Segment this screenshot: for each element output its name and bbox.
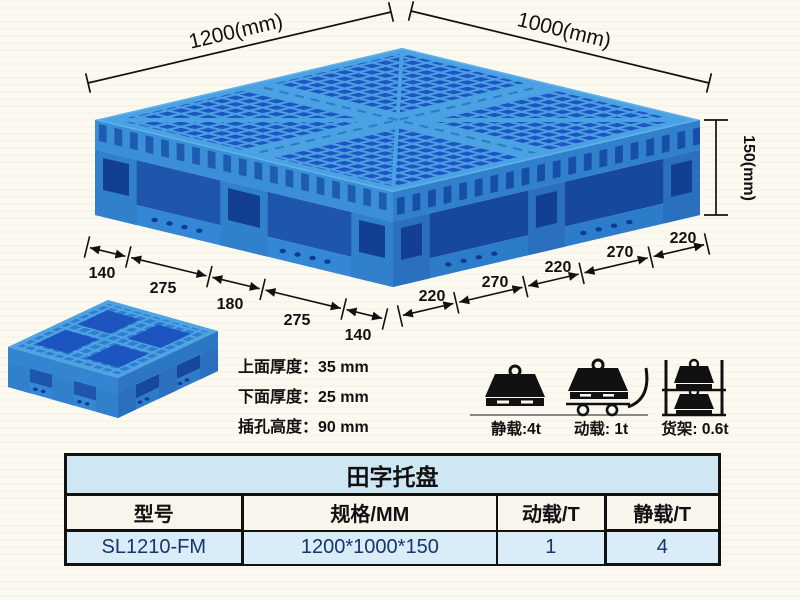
left-chain-dim-0: 140 [89,265,116,282]
header-model: 型号 [66,495,243,531]
cell-dynamic-load: 1 [497,531,605,565]
top-thickness-note: 上面厚度：35 mm [238,357,369,376]
cell-model: SL1210-FM [66,531,243,565]
left-chain-dim-4: 140 [345,327,372,344]
pallet-dimension-diagram: 1200(mm) 1000(mm) 150(mm) 140 275 180 27… [0,0,800,453]
header-dynamic-load: 动载/T [497,495,605,531]
right-chain-dim-1: 270 [482,274,509,291]
dimension-150-label: 150(mm) [740,135,757,201]
load-capacity-icons: 静载:4t 动载: 1t 货架: 0.6t [470,360,729,438]
right-chain-dim-0: 220 [419,288,446,305]
dimension-1200-label: 1200(mm) [187,9,285,53]
cell-spec: 1200*1000*150 [242,531,497,565]
dimension-150: 150(mm) [704,120,757,215]
dynamic-load-icon [566,360,647,415]
page: 1200(mm) 1000(mm) 150(mm) 140 275 180 27… [0,0,800,600]
left-chain-dim-2: 180 [217,296,244,313]
right-chain-dim-4: 220 [670,230,697,247]
table-data-row: SL1210-FM 1200*1000*150 1 4 [66,531,720,565]
static-load-label: 静载:4t [491,419,541,438]
right-chain-dim-2: 220 [545,259,572,276]
left-chain-dim-3: 275 [284,312,311,329]
cell-static-load: 4 [605,531,719,565]
static-load-icon [485,366,545,406]
right-chain-dim-3: 270 [607,244,634,261]
left-chain-dim-1: 275 [150,280,177,297]
small-pallet-illustration [8,300,218,418]
thickness-notes: 上面厚度：35 mm 下面厚度：25 mm 插孔高度：90 mm [238,357,369,436]
header-spec: 规格/MM [242,495,497,531]
rack-load-icon [662,360,726,415]
dynamic-load-label: 动载: 1t [574,420,628,438]
rack-load-label: 货架: 0.6t [661,419,728,438]
fork-hole-height-note: 插孔高度：90 mm [238,417,369,436]
table-title: 田字托盘 [66,455,720,495]
dimension-1000-label: 1000(mm) [515,8,613,53]
bottom-thickness-note: 下面厚度：25 mm [238,387,369,406]
table-title-row: 田字托盘 [66,455,720,495]
header-static-load: 静载/T [605,495,719,531]
table-header-row: 型号 规格/MM 动载/T 静载/T [66,495,720,531]
product-spec-table: 田字托盘 型号 规格/MM 动载/T 静载/T SL1210-FM 1200*1… [64,453,721,566]
